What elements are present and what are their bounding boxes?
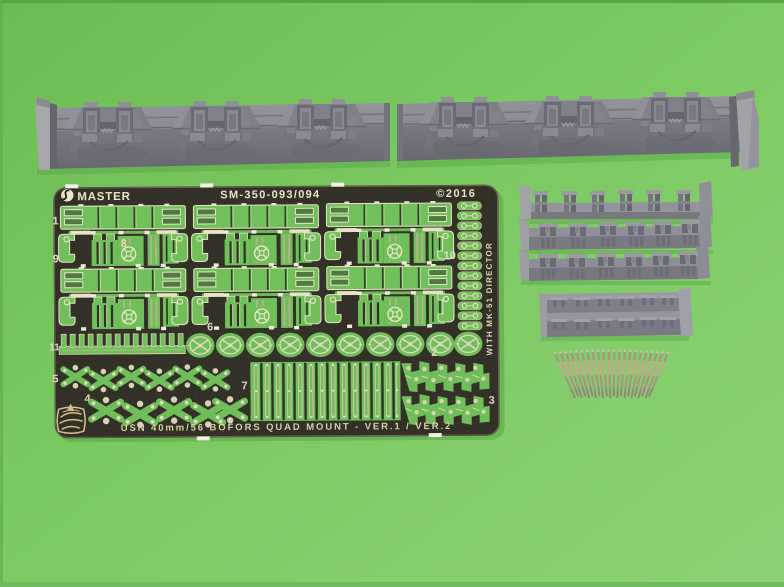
svg-text:5: 5 xyxy=(52,373,58,385)
svg-text:1: 1 xyxy=(52,215,58,227)
svg-text:WITH MK-51 DIRECTOR: WITH MK-51 DIRECTOR xyxy=(485,242,495,355)
svg-text:11: 11 xyxy=(49,342,60,353)
svg-text:SM-350-093/094: SM-350-093/094 xyxy=(220,189,320,202)
svg-text:3: 3 xyxy=(489,395,495,407)
svg-text:2: 2 xyxy=(431,347,437,359)
svg-text:©2016: ©2016 xyxy=(436,188,476,200)
svg-text:USN 40mm/56 BOFORS QUAD MOUNT: USN 40mm/56 BOFORS QUAD MOUNT - VER.1 / … xyxy=(121,421,453,434)
svg-text:8: 8 xyxy=(121,238,127,250)
svg-text:7: 7 xyxy=(241,380,247,392)
svg-text:9: 9 xyxy=(53,253,59,265)
svg-text:6: 6 xyxy=(207,321,213,333)
svg-text:MASTER: MASTER xyxy=(77,191,130,203)
svg-text:10: 10 xyxy=(444,250,456,262)
